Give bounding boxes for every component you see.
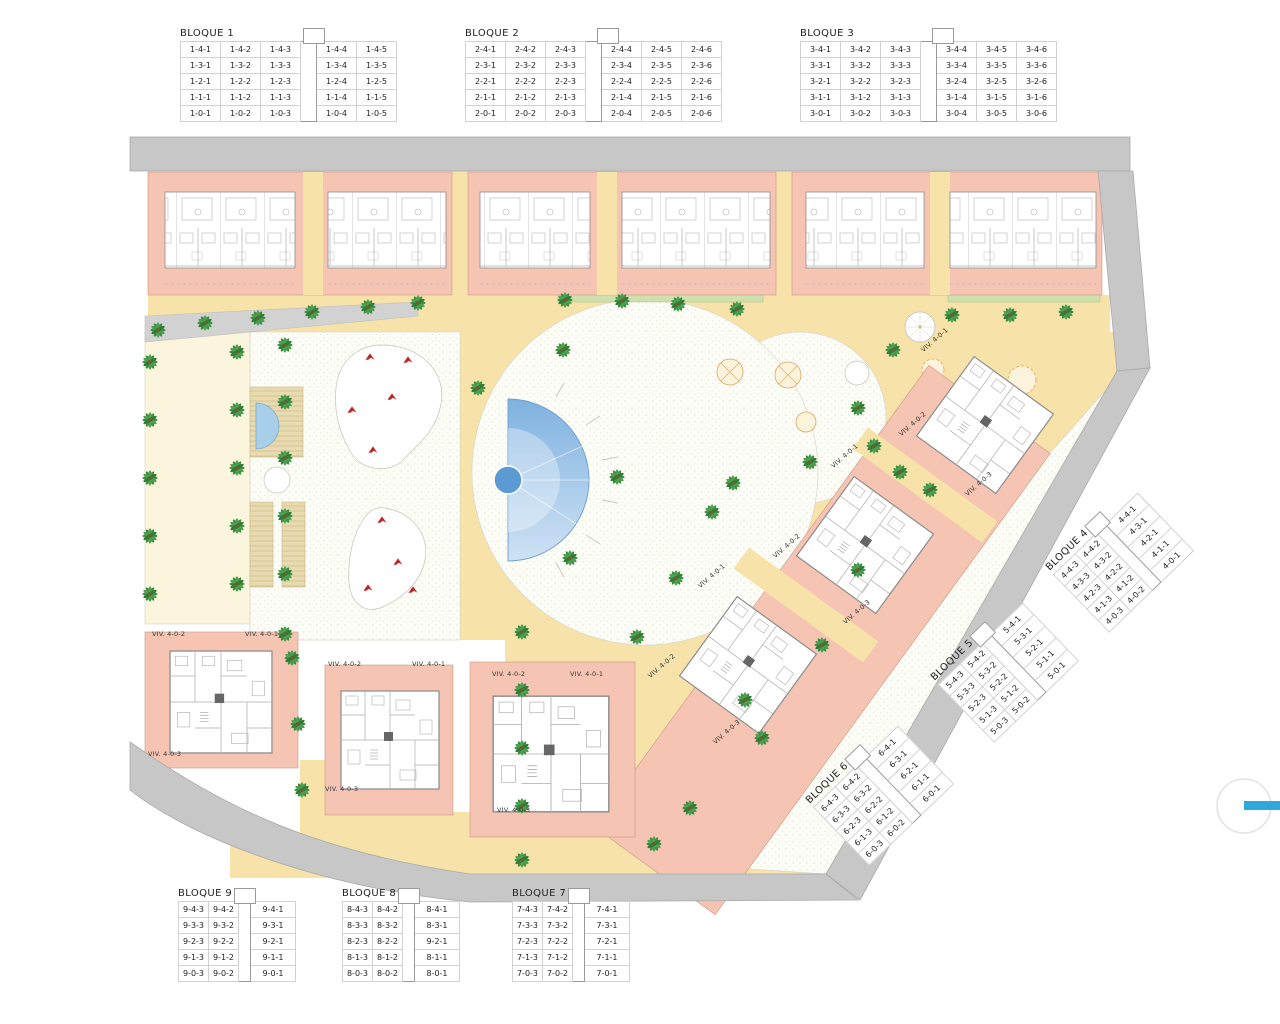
unit-cell: 9-3-3 [179, 918, 209, 934]
unit-cell: 3-2-3 [881, 74, 921, 90]
unit-cell: 2-3-2 [506, 58, 546, 74]
top-building-strips [148, 172, 1102, 295]
unit-cell: 1-2-4 [317, 74, 357, 90]
unit-cell: 7-0-3 [513, 966, 543, 982]
unit-cell: 2-3-5 [642, 58, 682, 74]
unit-cell: 8-1-2 [373, 950, 403, 966]
unit-cell: 2-4-1 [466, 42, 506, 58]
unit-cell: 3-1-4 [937, 90, 977, 106]
unit-cell: 3-0-4 [937, 106, 977, 122]
unit-cell: 2-0-5 [642, 106, 682, 122]
unit-cell: 1-2-2 [221, 74, 261, 90]
unit-cell: 2-2-1 [466, 74, 506, 90]
unit-cell: 9-4-1 [251, 902, 296, 918]
unit-cell: 9-2-1 [415, 934, 460, 950]
unit-cell: 3-0-2 [841, 106, 881, 122]
unit-cell: 3-3-6 [1017, 58, 1057, 74]
gap-cell [586, 90, 602, 106]
unit-cell: 7-4-1 [585, 902, 630, 918]
unit-cell: 1-1-2 [221, 90, 261, 106]
gap-cell [573, 918, 585, 934]
gap-cell [921, 90, 937, 106]
unit-cell: 7-3-3 [513, 918, 543, 934]
gap-cell [301, 90, 317, 106]
unit-cell: 3-3-5 [977, 58, 1017, 74]
villa-label: VIV. 4-0-3 [497, 806, 530, 814]
unit-cell: 8-3-1 [415, 918, 460, 934]
gap-cell [573, 950, 585, 966]
gap-cell [403, 950, 415, 966]
legend-box [932, 28, 954, 44]
unit-cell: 1-0-2 [221, 106, 261, 122]
unit-cell: 3-3-3 [881, 58, 921, 74]
villa-label: VIV. 4-0-2 [328, 660, 361, 668]
legend-box [234, 888, 256, 904]
legend-box [597, 28, 619, 44]
unit-cell: 7-1-1 [585, 950, 630, 966]
unit-cell: 9-1-2 [209, 950, 239, 966]
unit-cell: 2-1-5 [642, 90, 682, 106]
unit-cell: 2-1-6 [682, 90, 722, 106]
unit-cell: 8-0-3 [343, 966, 373, 982]
unit-cell: 2-1-1 [466, 90, 506, 106]
unit-cell: 9-1-3 [179, 950, 209, 966]
unit-cell: 2-1-2 [506, 90, 546, 106]
unit-cell: 1-1-5 [357, 90, 397, 106]
unit-cell: 2-3-4 [602, 58, 642, 74]
gap-cell [239, 950, 251, 966]
unit-cell: 9-4-3 [179, 902, 209, 918]
road-top [130, 137, 1130, 171]
unit-cell: 2-0-4 [602, 106, 642, 122]
gap-cell [921, 106, 937, 122]
unit-cell: 2-2-3 [546, 74, 586, 90]
unit-cell: 2-0-3 [546, 106, 586, 122]
unit-cell: 9-2-2 [209, 934, 239, 950]
unit-cell: 1-0-3 [261, 106, 301, 122]
unit-cell: 2-0-1 [466, 106, 506, 122]
unit-cell: 1-0-5 [357, 106, 397, 122]
unit-cell: 3-1-1 [801, 90, 841, 106]
unit-cell: 7-0-2 [543, 966, 573, 982]
unit-cell: 7-2-2 [543, 934, 573, 950]
unit-cell: 3-4-1 [801, 42, 841, 58]
bloque-7-table: BLOQUE 77-4-37-4-27-4-17-3-37-3-27-3-17-… [512, 888, 630, 982]
unit-cell: 8-0-2 [373, 966, 403, 982]
unit-cell: 1-3-4 [317, 58, 357, 74]
unit-cell: 1-3-2 [221, 58, 261, 74]
gap-cell [239, 966, 251, 982]
unit-cell: 1-3-1 [181, 58, 221, 74]
unit-cell: 8-2-3 [343, 934, 373, 950]
unit-cell: 3-2-5 [977, 74, 1017, 90]
unit-cell: 7-2-3 [513, 934, 543, 950]
legend-box [398, 888, 420, 904]
unit-cell: 2-3-1 [466, 58, 506, 74]
unit-cell: 9-1-1 [251, 950, 296, 966]
unit-cell: 3-4-2 [841, 42, 881, 58]
unit-cell: 1-4-1 [181, 42, 221, 58]
unit-cell: 8-1-3 [343, 950, 373, 966]
unit-cell: 1-2-5 [357, 74, 397, 90]
gap-cell [301, 106, 317, 122]
site-plan-canvas: VIV. 4-0-2 VIV. 4-0-1 VIV. 4-0-3 VIV. 4-… [0, 0, 1280, 1024]
unit-cell: 1-1-4 [317, 90, 357, 106]
unit-cell: 8-4-3 [343, 902, 373, 918]
unit-cell: 2-4-6 [682, 42, 722, 58]
unit-grid: 3-4-13-4-23-4-33-4-43-4-53-4-63-3-13-3-2… [800, 41, 1057, 122]
unit-cell: 1-2-3 [261, 74, 301, 90]
legend-box [303, 28, 325, 44]
unit-cell: 1-1-3 [261, 90, 301, 106]
unit-cell: 1-4-5 [357, 42, 397, 58]
unit-cell: 3-1-2 [841, 90, 881, 106]
unit-cell: 3-3-4 [937, 58, 977, 74]
round-feature [264, 467, 290, 493]
unit-cell: 2-4-3 [546, 42, 586, 58]
unit-cell: 2-2-4 [602, 74, 642, 90]
north-indicator [1217, 779, 1280, 833]
gap-cell [239, 918, 251, 934]
unit-cell: 2-4-5 [642, 42, 682, 58]
unit-cell: 7-2-1 [585, 934, 630, 950]
unit-cell: 3-3-1 [801, 58, 841, 74]
villa-label: VIV. 4-0-1 [570, 670, 603, 678]
unit-cell: 3-2-4 [937, 74, 977, 90]
pergola-1 [250, 502, 273, 587]
wood-deck [250, 387, 303, 457]
unit-cell: 2-4-2 [506, 42, 546, 58]
unit-cell: 3-0-1 [801, 106, 841, 122]
villa-b-plan [341, 691, 439, 789]
villa-label: VIV. 4-0-1 [245, 630, 278, 638]
gap-cell [921, 74, 937, 90]
block-title: BLOQUE 1 [180, 28, 397, 39]
gap-cell [301, 74, 317, 90]
unit-cell: 7-0-1 [585, 966, 630, 982]
unit-cell: 8-4-1 [415, 902, 460, 918]
unit-cell: 8-0-1 [415, 966, 460, 982]
unit-cell: 2-0-6 [682, 106, 722, 122]
villa-label: VIV. 4-0-2 [492, 670, 525, 678]
gap-cell [586, 58, 602, 74]
unit-cell: 1-1-1 [181, 90, 221, 106]
bloque-8-table: BLOQUE 88-4-38-4-28-4-18-3-38-3-28-3-18-… [342, 888, 460, 982]
kids-pool [494, 466, 522, 494]
unit-cell: 3-0-5 [977, 106, 1017, 122]
gap-cell [301, 58, 317, 74]
unit-cell: 3-2-6 [1017, 74, 1057, 90]
unit-cell: 1-4-2 [221, 42, 261, 58]
gap-cell [586, 106, 602, 122]
unit-cell: 9-3-1 [251, 918, 296, 934]
unit-cell: 3-0-6 [1017, 106, 1057, 122]
unit-cell: 8-2-2 [373, 934, 403, 950]
unit-cell: 3-4-6 [1017, 42, 1057, 58]
unit-cell: 7-4-3 [513, 902, 543, 918]
unit-cell: 1-4-3 [261, 42, 301, 58]
bloque-1-table: BLOQUE 11-4-11-4-21-4-31-4-41-4-51-3-11-… [180, 28, 397, 122]
unit-grid: 8-4-38-4-28-4-18-3-38-3-28-3-18-2-38-2-2… [342, 901, 460, 982]
unit-cell: 7-1-2 [543, 950, 573, 966]
unit-cell: 2-2-5 [642, 74, 682, 90]
unit-cell: 7-3-2 [543, 918, 573, 934]
unit-cell: 3-4-5 [977, 42, 1017, 58]
unit-cell: 2-3-3 [546, 58, 586, 74]
unit-cell: 3-3-2 [841, 58, 881, 74]
unit-cell: 9-2-1 [251, 934, 296, 950]
unit-cell: 2-0-2 [506, 106, 546, 122]
bloque-9-table: BLOQUE 99-4-39-4-29-4-19-3-39-3-29-3-19-… [178, 888, 296, 982]
villa-a-plan [170, 651, 272, 753]
unit-cell: 3-1-3 [881, 90, 921, 106]
gap-cell [403, 918, 415, 934]
unit-grid: 1-4-11-4-21-4-31-4-41-4-51-3-11-3-21-3-3… [180, 41, 397, 122]
gap-cell [403, 934, 415, 950]
north-arrow-icon [1244, 801, 1280, 810]
unit-cell: 3-0-3 [881, 106, 921, 122]
bloque-3-table: BLOQUE 33-4-13-4-23-4-33-4-43-4-53-4-63-… [800, 28, 1057, 122]
site-plan-drawing [0, 0, 1280, 1024]
gap-cell [573, 934, 585, 950]
unit-cell: 7-3-1 [585, 918, 630, 934]
unit-cell: 8-3-2 [373, 918, 403, 934]
unit-cell: 9-3-2 [209, 918, 239, 934]
unit-cell: 1-2-1 [181, 74, 221, 90]
gap-cell [403, 966, 415, 982]
block-title: BLOQUE 2 [465, 28, 722, 39]
villa-label: VIV. 4-0-1 [412, 660, 445, 668]
round-planter [845, 361, 869, 385]
unit-cell: 3-2-2 [841, 74, 881, 90]
unit-cell: 2-1-4 [602, 90, 642, 106]
unit-cell: 9-0-2 [209, 966, 239, 982]
villa-c-plan [493, 696, 609, 812]
gap-cell [921, 58, 937, 74]
legend-box [568, 888, 590, 904]
unit-cell: 3-2-1 [801, 74, 841, 90]
villa-label: VIV. 4-0-3 [148, 750, 181, 758]
unit-cell: 7-1-3 [513, 950, 543, 966]
unit-grid: 2-4-12-4-22-4-32-4-42-4-52-4-62-3-12-3-2… [465, 41, 722, 122]
unit-grid: 7-4-37-4-27-4-17-3-37-3-27-3-17-2-37-2-2… [512, 901, 630, 982]
unit-cell: 2-2-2 [506, 74, 546, 90]
gap-cell [239, 934, 251, 950]
gap-cell [573, 966, 585, 982]
unit-cell: 8-1-1 [415, 950, 460, 966]
unit-cell: 2-3-6 [682, 58, 722, 74]
unit-cell: 2-1-3 [546, 90, 586, 106]
unit-cell: 1-0-1 [181, 106, 221, 122]
unit-cell: 8-3-3 [343, 918, 373, 934]
villa-label: VIV. 4-0-2 [152, 630, 185, 638]
unit-cell: 1-3-5 [357, 58, 397, 74]
unit-cell: 2-2-6 [682, 74, 722, 90]
bloque-2-table: BLOQUE 22-4-12-4-22-4-32-4-42-4-52-4-62-… [465, 28, 722, 122]
unit-cell: 9-0-3 [179, 966, 209, 982]
unit-cell: 9-2-3 [179, 934, 209, 950]
villa-label: VIV. 4-0-3 [325, 785, 358, 793]
block-title: BLOQUE 3 [800, 28, 1057, 39]
gap-cell [586, 74, 602, 90]
unit-cell: 3-1-5 [977, 90, 1017, 106]
unit-cell: 3-4-3 [881, 42, 921, 58]
unit-grid: 9-4-39-4-29-4-19-3-39-3-29-3-19-2-39-2-2… [178, 901, 296, 982]
unit-cell: 1-0-4 [317, 106, 357, 122]
unit-cell: 1-3-3 [261, 58, 301, 74]
unit-cell: 3-1-6 [1017, 90, 1057, 106]
unit-cell: 9-0-1 [251, 966, 296, 982]
